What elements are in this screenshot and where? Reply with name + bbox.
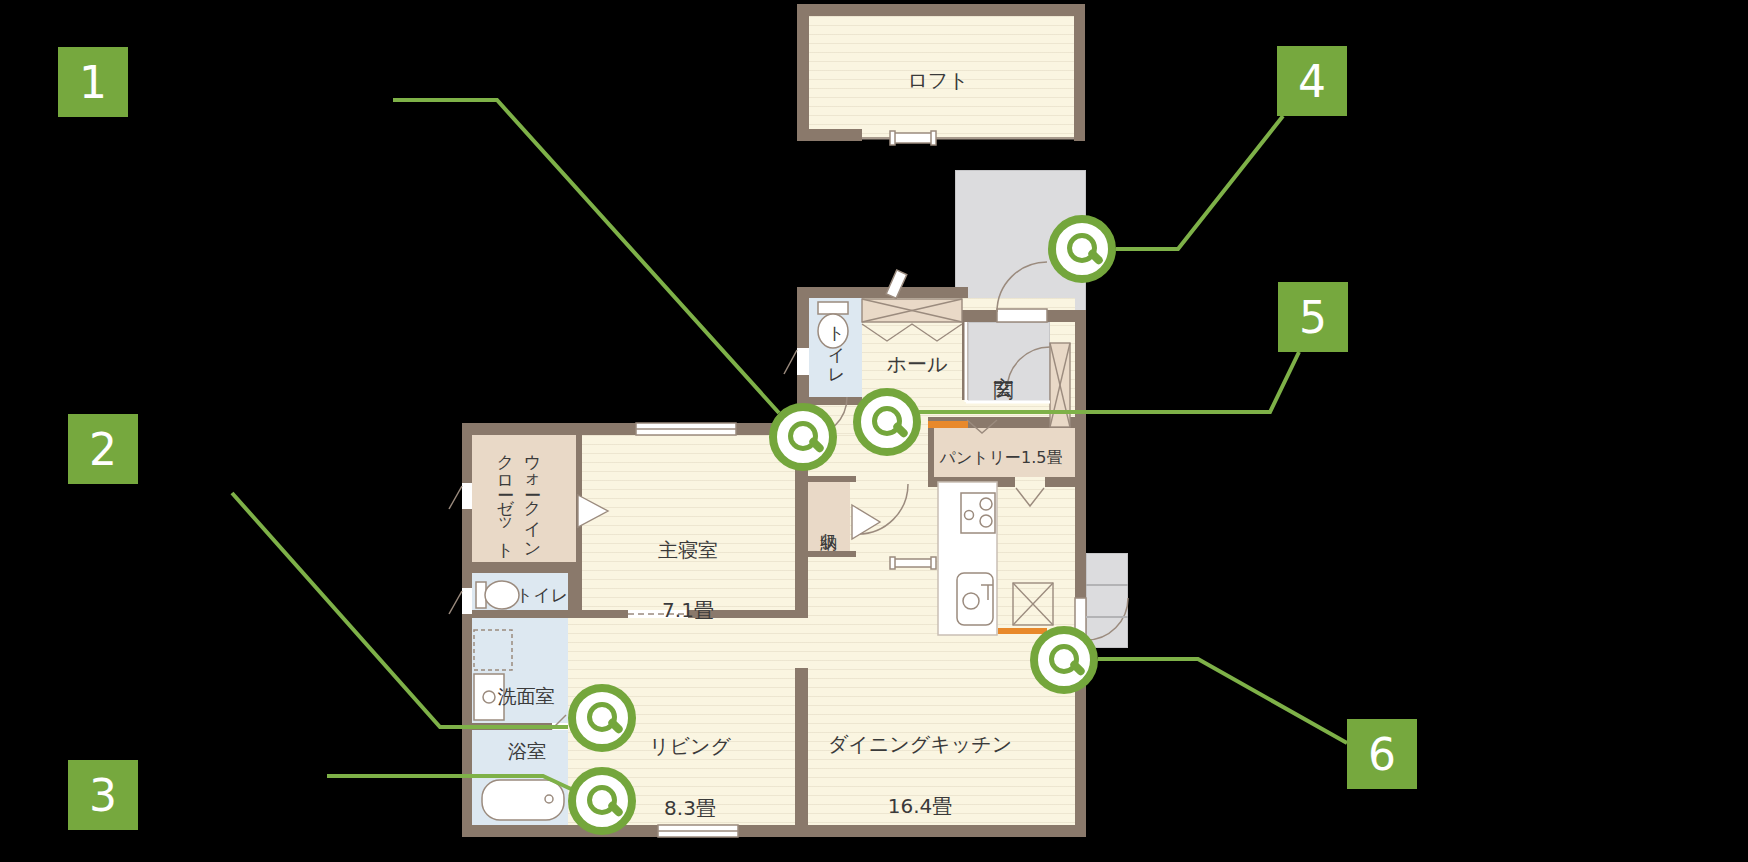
master-bedroom-size: 7.1畳 <box>618 595 758 625</box>
master-bedroom-name: 主寝室 <box>618 535 758 565</box>
marker-3[interactable]: 3 <box>68 760 138 830</box>
hall-label: ホール <box>867 351 967 378</box>
magnifier-handle-icon <box>607 800 625 818</box>
zoom-spot-5[interactable] <box>853 388 921 456</box>
upper-toilet-label: トイレ <box>826 303 849 389</box>
magnifier-handle-icon <box>607 717 625 735</box>
zoom-spot-1[interactable] <box>769 403 837 471</box>
loft-label: ロフト <box>888 67 988 94</box>
zoom-spot-2[interactable] <box>568 684 636 752</box>
magnifier-handle-icon <box>1087 248 1105 266</box>
marker-2[interactable]: 2 <box>68 414 138 484</box>
dining-kitchen-name: ダイニングキッチン <box>810 729 1030 760</box>
magnifier-handle-icon <box>1069 659 1087 677</box>
walk-in-closet-label-line2: クローゼット <box>496 443 516 552</box>
marker-1[interactable]: 1 <box>58 47 128 117</box>
bathroom-label: 浴室 <box>477 739 577 765</box>
zoom-spot-6[interactable] <box>1030 626 1098 694</box>
washroom-label: 洗面室 <box>466 684 586 710</box>
connector-line-6 <box>1098 659 1347 743</box>
living-name: リビング <box>610 731 770 762</box>
back-porch-steps <box>1086 553 1128 648</box>
walk-in-closet-label: ウォークイン クローゼット <box>492 427 573 569</box>
master-bedroom-label: 主寝室 7.1畳 <box>618 505 758 655</box>
storage-label: 収納 <box>818 496 841 546</box>
pantry-label: パントリー1.5畳 <box>921 448 1081 469</box>
magnifier-handle-icon <box>808 436 826 454</box>
marker-6[interactable]: 6 <box>1347 719 1417 789</box>
dining-kitchen-label: ダイニングキッチン 16.4畳 <box>810 698 1030 853</box>
zoom-spot-3[interactable] <box>568 767 636 835</box>
magnifier-handle-icon <box>892 421 910 439</box>
marker-5[interactable]: 5 <box>1278 282 1348 352</box>
lower-toilet-label: トイレ <box>502 584 582 607</box>
connector-line-1 <box>393 100 779 413</box>
connector-line-4 <box>1116 116 1283 249</box>
walk-in-closet-label-line1: ウォークイン <box>523 443 543 552</box>
zoom-spot-4[interactable] <box>1048 215 1116 283</box>
marker-4[interactable]: 4 <box>1277 46 1347 116</box>
dining-kitchen-size: 16.4畳 <box>810 791 1030 822</box>
entrance-label: 玄関 <box>991 325 1018 405</box>
floorplan-annotation-image: ロフト トイレ ホール 玄関 パントリー1.5畳 ウォークイン クローゼット 主… <box>0 0 1748 862</box>
